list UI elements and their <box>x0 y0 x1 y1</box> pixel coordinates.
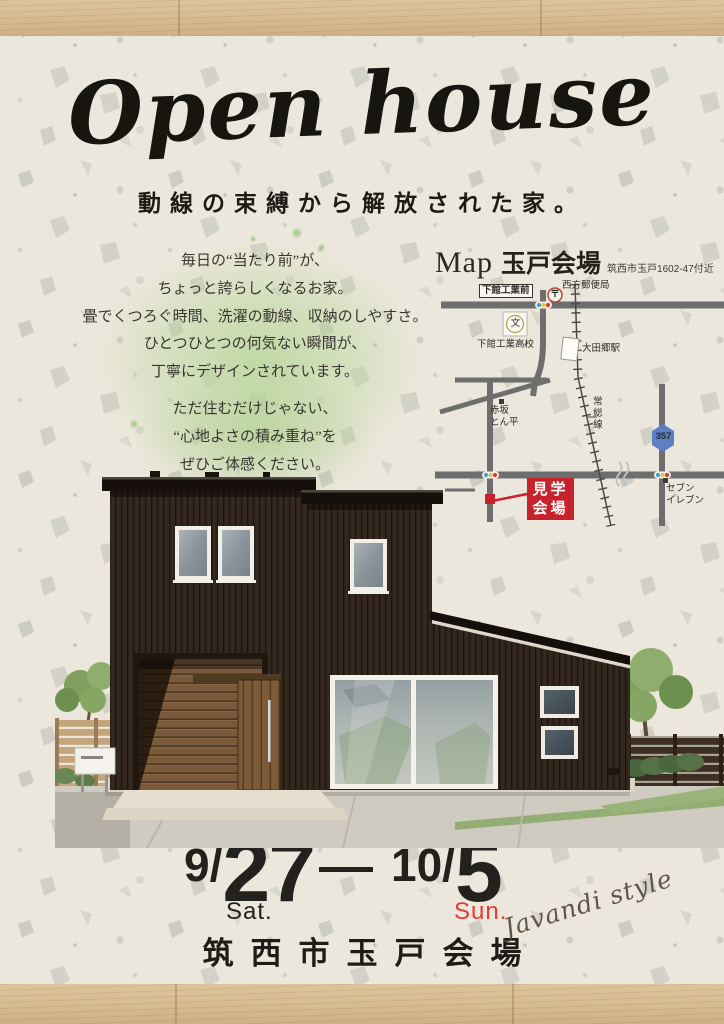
intro-line: 畳でくつろぐ時間、洗濯の動線、収納のしやすさ。 <box>35 304 475 332</box>
date-end: 10/ 5 <box>391 840 501 905</box>
green-dot <box>292 228 302 238</box>
date-start: 9/ 27 <box>184 840 314 905</box>
door-handle <box>268 700 271 762</box>
house-illustration <box>55 468 724 848</box>
upper-window-middle <box>348 539 389 594</box>
map-label-restaurant: 赤坂 とん平 <box>490 405 519 429</box>
large-sliding-window <box>330 675 498 789</box>
map-label-restaurant-line: とん平 <box>490 417 519 429</box>
end-weekday: Sun. <box>454 898 507 926</box>
wood-seam <box>540 0 542 36</box>
end-month: 10/ <box>391 842 455 888</box>
flyer-poster: Open house 動線の束縛から解放された家。 毎日の“当たり前”が、 ちょ… <box>0 0 724 1024</box>
map-label-restaurant-line: 赤坂 <box>490 405 519 417</box>
map-label-station: 大田郷駅 <box>582 343 620 355</box>
wood-seam <box>175 984 177 1024</box>
start-weekday: Sat. <box>226 898 273 926</box>
wood-border-bottom <box>0 984 724 1024</box>
wood-seam <box>178 0 180 36</box>
date-range-dash <box>319 867 373 872</box>
appeal-line: ただ住むだけじゃない、 <box>85 396 425 424</box>
end-day: 5 <box>455 840 501 905</box>
route-357-shield-label: 357 <box>651 431 676 443</box>
map-label-school: 下館工業高校 <box>477 339 534 351</box>
appeal-paragraph: ただ住むだけじゃない、 “心地よさの積み重ね”を ぜひご体感ください。 <box>85 396 425 479</box>
wood-seam <box>512 984 514 1024</box>
map-label-rail-line: 常総線 <box>590 396 602 431</box>
start-day: 27 <box>222 840 314 905</box>
appeal-line: “心地よさの積み重ね”を <box>85 424 425 452</box>
school-icon: 文 <box>507 318 524 330</box>
post-office-icon: 〒 <box>548 289 562 301</box>
porch-step <box>113 790 335 808</box>
intro-paragraph: 毎日の“当たり前”が、 ちょっと誇らしくなるお家。 畳でくつろぐ時間、洗濯の動線… <box>35 248 475 387</box>
intro-line: 毎日の“当たり前”が、 <box>35 248 475 276</box>
map-label-post-office: 西方郵便局 <box>562 280 610 292</box>
porch-step <box>102 808 348 820</box>
entry <box>133 653 281 790</box>
green-dot <box>250 236 256 242</box>
start-month: 9/ <box>184 842 222 888</box>
wood-border-top <box>0 0 724 36</box>
front-door <box>238 680 280 790</box>
intro-line: ひとつひとつの何気ない瞬間が、 <box>35 331 475 359</box>
subtitle: 動線の束縛から解放された家。 <box>0 184 724 218</box>
intro-line: 丁寧にデザインされています。 <box>35 359 475 387</box>
venue-name: 筑西市玉戸会場 <box>0 928 724 973</box>
intro-line: ちょっと誇らしくなるお家。 <box>35 276 475 304</box>
map-label-bus-stop: 下館工業前 <box>479 284 533 298</box>
left-tree <box>55 662 115 730</box>
